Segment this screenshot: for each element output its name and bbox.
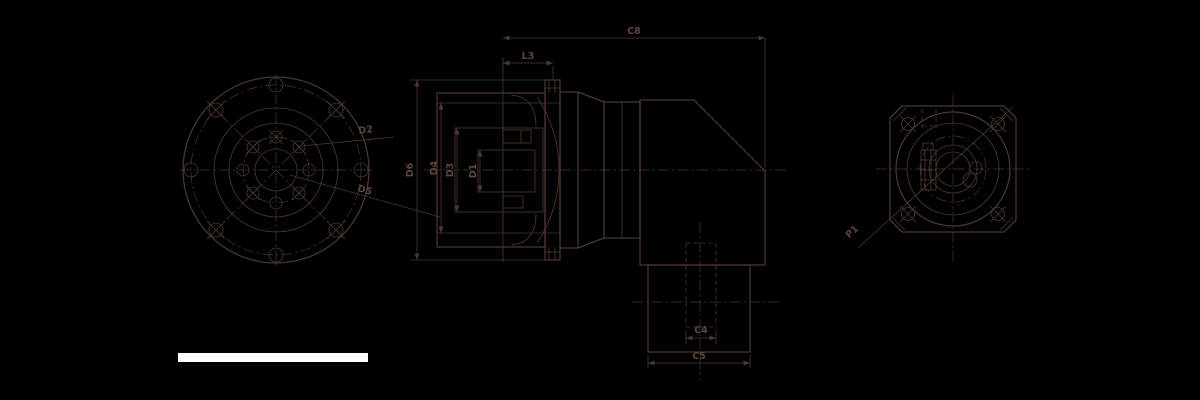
dim-overall-length: C8	[503, 26, 765, 168]
engineering-drawing: D2 D5	[0, 0, 1200, 400]
dim-label-c8: C8	[627, 26, 641, 37]
dim-output-boss-width: C4	[686, 325, 716, 344]
front-flange-view: D2 D5	[180, 74, 440, 266]
dim-label-d4: D4	[429, 160, 440, 175]
tap-hole-2	[963, 173, 977, 187]
rear-face-view: P1	[844, 95, 1032, 262]
dim-label-d6: D6	[405, 162, 416, 177]
drawing-canvas: D2 D5	[0, 0, 1200, 400]
dim-input-length: L3	[503, 51, 553, 80]
leader-inner-bolt-circle: D2	[301, 124, 394, 146]
leader-mounting-pitch: P1	[844, 107, 1013, 248]
hidden-output-boss	[686, 243, 716, 327]
redaction-bar	[178, 353, 368, 362]
side-view: C8 L3 D6 D4 D3 D1	[405, 26, 788, 380]
dim-label-l3: L3	[522, 51, 535, 62]
leader-outer-bolt-circle: D5	[290, 175, 440, 217]
dim-label-p1: P1	[844, 224, 861, 241]
dim-label-d3: D3	[445, 163, 456, 178]
dim-label-d5: D5	[356, 183, 373, 198]
dim-label-d1: D1	[468, 164, 479, 179]
dim-label-c5: C5	[692, 351, 706, 362]
dim-output-housing-width: C5	[648, 351, 750, 368]
dim-label-c4: C4	[694, 325, 708, 336]
dim-label-d2: D2	[358, 124, 374, 137]
clamp-screw-detail	[921, 109, 936, 190]
